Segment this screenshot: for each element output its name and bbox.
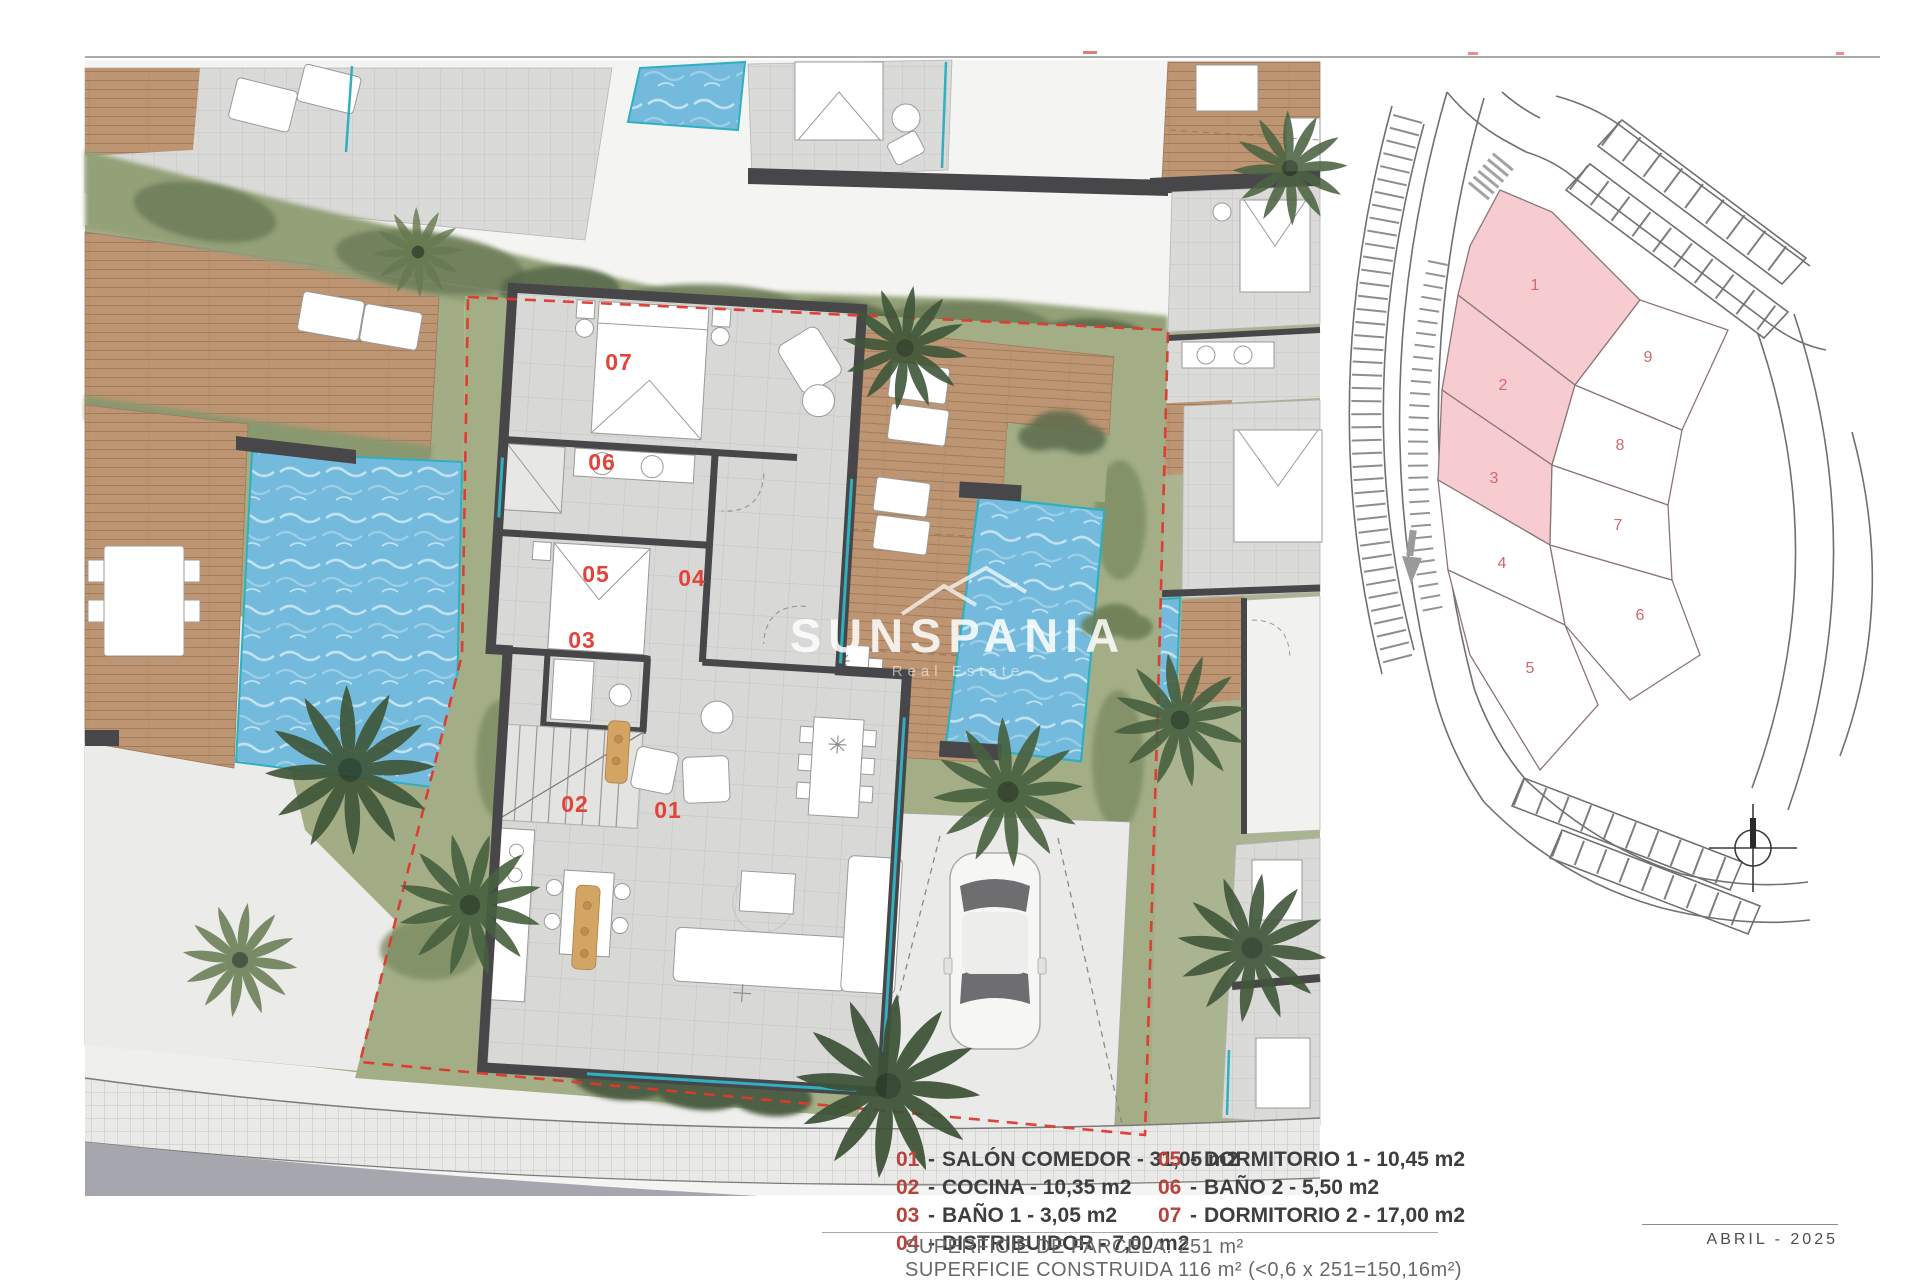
legend-text: DORMITORIO 2 - 17,00 m2 [1204,1204,1465,1228]
legend-item: 07 - DORMITORIO 2 - 17,00 m2 [1158,1204,1465,1232]
legend-num: 05 [1158,1148,1188,1172]
legend-num: 03 [896,1204,926,1228]
compass-icon [1709,804,1797,892]
room-label-01: 01 [654,797,682,823]
plot-number-6: 6 [1636,607,1645,624]
room-label-04: 04 [678,565,706,591]
plot-number-1: 1 [1531,277,1540,294]
legend-divider [822,1232,1438,1233]
legend-text: DORMITORIO 1 - 10,45 m2 [1204,1148,1465,1172]
site-plan-canvas: 01 02 03 04 05 06 07 SUNSPANIA Real Esta… [0,0,1920,1280]
plot-number-3: 3 [1490,470,1499,487]
date-block: ABRIL - 2025 [1642,1224,1838,1249]
plot-polygons [1438,190,1728,770]
plot-number-9: 9 [1644,349,1653,366]
sheet-border [85,51,1880,57]
room-label-03: 03 [568,627,596,653]
left-deck-dining-table [88,546,200,656]
legend-num: 07 [1158,1204,1188,1228]
floor-plan-sheet: 01 02 03 04 05 06 07 SUNSPANIA Real Esta… [0,0,1920,1280]
legend-text: BAÑO 2 - 5,50 m2 [1204,1176,1379,1200]
surface-parcel: SUPERFICIE DE PARCELA: 251 m² [905,1236,1462,1259]
room-label-07: 07 [605,349,633,375]
plot-number-8: 8 [1616,437,1625,454]
watermark-brand: SUNSPANIA [790,609,1126,662]
legend-num: 06 [1158,1176,1188,1200]
legend-num: 01 [896,1148,926,1172]
legend-item: 06 - BAÑO 2 - 5,50 m2 [1158,1176,1465,1204]
plot-number-4: 4 [1498,555,1507,572]
plot-number-5: 5 [1526,660,1535,677]
room-label-02: 02 [561,791,589,817]
legend-text: COCINA - 10,35 m2 [942,1176,1131,1200]
legend-num: 02 [896,1176,926,1200]
main-site-plan: 01 02 03 04 05 06 07 SUNSPANIA Real Esta… [85,60,1369,1196]
car [944,853,1046,1049]
plot-number-2: 2 [1499,377,1508,394]
legend-text: BAÑO 1 - 3,05 m2 [942,1204,1117,1228]
surface-built: SUPERFICIE CONSTRUIDA 116 m² (<0,6 x 251… [905,1259,1462,1280]
watermark-tagline: Real Estate [892,663,1025,680]
bath1 [543,653,647,731]
legend-item: 05 - DORMITORIO 1 - 10,45 m2 [1158,1148,1465,1176]
room-label-05: 05 [582,561,610,587]
plan-date: ABRIL - 2025 [1642,1231,1838,1249]
plot-number-7: 7 [1614,517,1623,534]
room-label-06: 06 [588,449,616,475]
date-divider [1642,1224,1838,1225]
surface-info: SUPERFICIE DE PARCELA: 251 m² SUPERFICIE… [905,1236,1462,1280]
location-map: 1 2 3 4 5 6 7 8 9 [1349,92,1872,934]
